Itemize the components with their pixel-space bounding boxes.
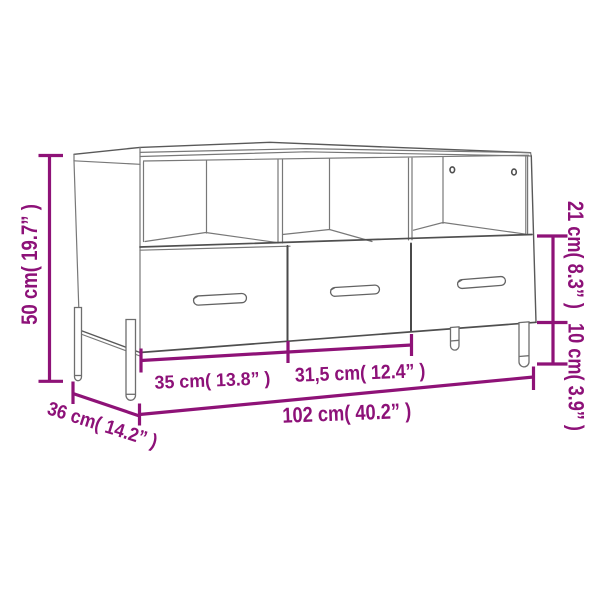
svg-text:10 cm( 3.9” ): 10 cm( 3.9” )	[563, 323, 588, 431]
svg-text:102 cm( 40.2” ): 102 cm( 40.2” )	[282, 400, 412, 429]
svg-text:50 cm( 19.7” ): 50 cm( 19.7” )	[19, 204, 43, 325]
svg-text:31,5 cm( 12.4” ): 31,5 cm( 12.4” )	[294, 360, 425, 387]
svg-text:35 cm( 13.8” ): 35 cm( 13.8” )	[154, 368, 271, 393]
svg-text:21 cm( 8.3” ): 21 cm( 8.3” )	[562, 201, 587, 309]
